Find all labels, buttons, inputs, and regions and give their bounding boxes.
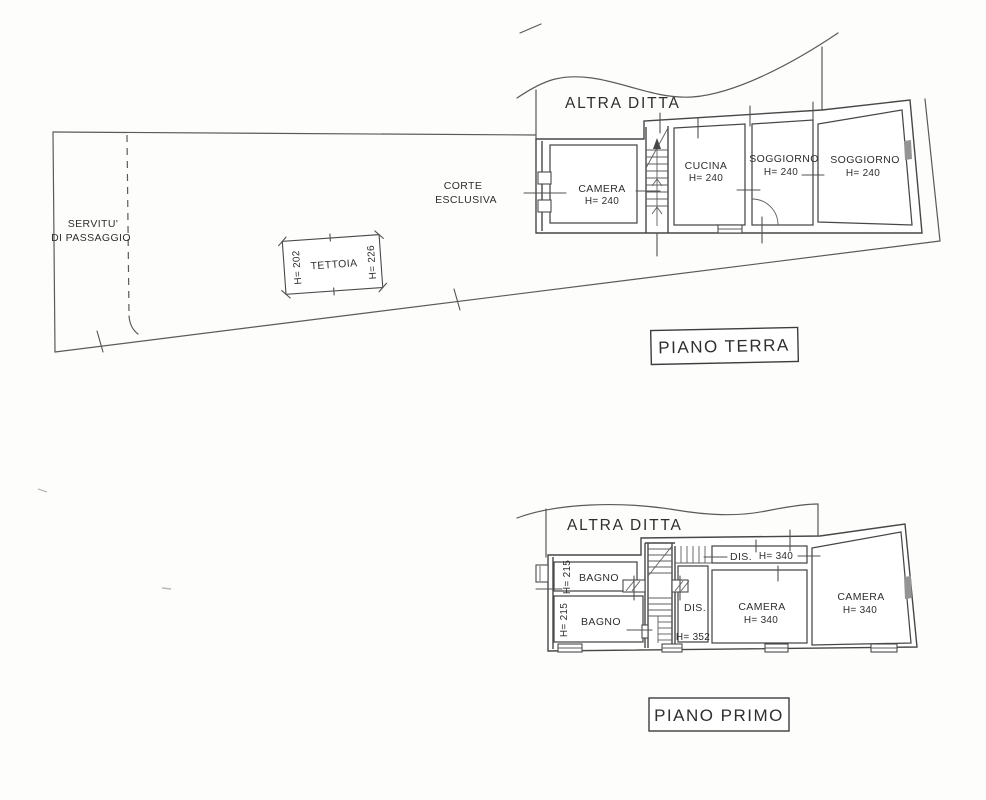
piano-terra-label-box: PIANO TERRA	[651, 327, 799, 364]
ff-bagno2-height: H= 215	[559, 603, 570, 637]
gf-left-wall-opening-2	[538, 200, 551, 212]
gf-cucina-label: CUCINA	[685, 160, 728, 172]
altra-ditta-label-gf: ALTRA DITTA	[565, 95, 681, 112]
floor-plan-drawing: SERVITU' DI PASSAGGIO CORTE ESCLUSIVA AL…	[0, 0, 986, 800]
ff-camera2-height: H= 340	[843, 605, 877, 616]
gf-window-right-wing	[904, 140, 912, 160]
gf-cucina-height: H= 240	[689, 173, 723, 184]
ff-room-camera-2	[812, 532, 911, 645]
piano-terra-plan: SERVITU' DI PASSAGGIO CORTE ESCLUSIVA AL…	[51, 24, 940, 365]
scan-specks	[38, 489, 171, 589]
ff-camera1-label: CAMERA	[738, 601, 785, 613]
ff-camera2-label: CAMERA	[837, 591, 884, 603]
gf-soggiorno2-height: H= 240	[846, 168, 880, 179]
gf-soggiorno1-height: H= 240	[764, 167, 798, 178]
piano-primo-label: PIANO PRIMO	[654, 706, 784, 725]
gf-left-wall-opening-1	[538, 172, 551, 184]
servitu-di-passaggio-label-line1: SERVITU'	[68, 218, 119, 230]
gf-soggiorno2-label: SOGGIORNO	[830, 154, 900, 166]
piano-primo-plan: ALTRA DITTA	[517, 504, 917, 731]
servitu-di-passaggio-label-line2: DI PASSAGGIO	[51, 232, 131, 244]
gf-building: CAMERA H= 240 CUCINA H= 240 SOGGIORNO H=…	[524, 100, 922, 256]
gf-soggiorno1-label: SOGGIORNO	[749, 153, 819, 165]
ff-bagno1-height: H= 215	[562, 560, 573, 594]
piano-primo-label-box: PIANO PRIMO	[649, 698, 789, 731]
ff-dis2-label: DIS.	[730, 551, 752, 563]
altra-ditta-label-ff: ALTRA DITTA	[567, 517, 683, 534]
ff-building: BAGNO H= 215 BAGNO H= 215 DIS. H= 352 DI…	[536, 524, 917, 652]
corte-esclusiva-label-line1: CORTE	[444, 180, 483, 192]
ff-window-left-wall	[536, 565, 548, 582]
ff-dis1-label: DIS.	[684, 602, 706, 614]
gf-camera-height: H= 240	[585, 196, 619, 207]
piano-terra-label: PIANO TERRA	[658, 336, 790, 358]
ff-bagno2-label: BAGNO	[581, 616, 621, 628]
ff-window-right-wing	[904, 576, 912, 599]
floor-plan-sheet: SERVITU' DI PASSAGGIO CORTE ESCLUSIVA AL…	[0, 0, 986, 800]
ff-stair-door-jamb	[642, 625, 648, 638]
tettoia: TETTOIA H= 202 H= 226	[278, 230, 387, 298]
ff-bagno1-label: BAGNO	[579, 572, 619, 584]
ff-dis2-height: H= 340	[759, 551, 793, 562]
ff-camera1-height: H= 340	[744, 615, 778, 626]
gf-camera-label: CAMERA	[578, 183, 625, 195]
ff-dis1-height: H= 352	[676, 632, 710, 643]
corte-esclusiva-label-line2: ESCLUSIVA	[435, 194, 497, 206]
